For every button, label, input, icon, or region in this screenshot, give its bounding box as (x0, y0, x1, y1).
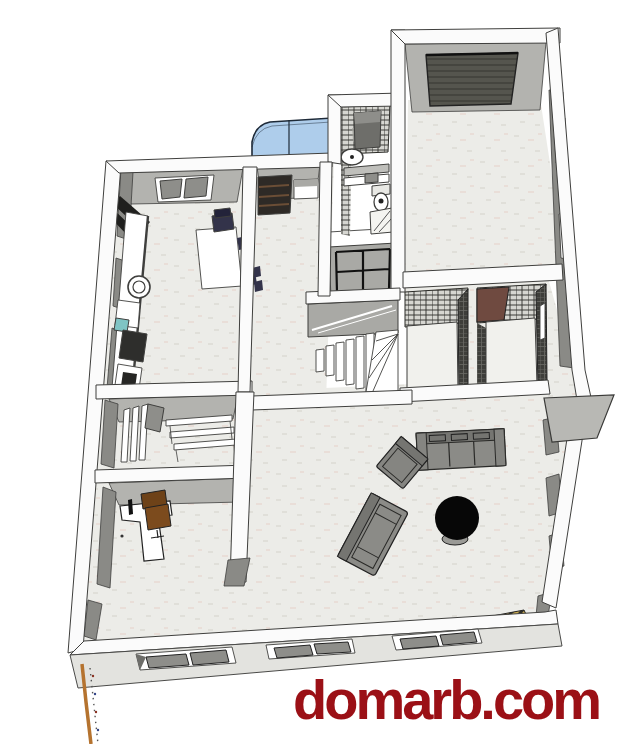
watermark: domarb.com (293, 667, 630, 732)
kitchen-stove (119, 330, 147, 362)
kitchen-sink-cabinet (114, 318, 129, 332)
bathroom-sink (341, 149, 363, 165)
hall-right-wall (318, 162, 332, 296)
kitchen-table (196, 227, 242, 289)
floor-plan-svg (0, 0, 630, 744)
kitchen-window (155, 175, 214, 202)
bathroom-shelves (344, 164, 389, 186)
sofa (416, 429, 506, 471)
garage-left-wall (391, 30, 405, 292)
shower-tray (370, 208, 393, 234)
stair-steps (316, 330, 398, 392)
sauna-stove-patch (477, 287, 509, 322)
terrace-canopy (544, 395, 614, 442)
hall-stool (254, 280, 263, 292)
dresser (294, 179, 318, 199)
sauna-room-2 (477, 284, 547, 388)
kitchen-sink (128, 276, 150, 298)
sauna-room-1 (405, 288, 468, 394)
garage-top-exterior-wall (391, 28, 560, 44)
shoe-rack (258, 175, 292, 215)
washing-machine (354, 111, 381, 149)
floor-plan-rendering: domarb.com (0, 0, 630, 744)
bathroom-top-wall (328, 93, 401, 107)
toilet (372, 184, 390, 211)
garage-door (426, 53, 518, 106)
